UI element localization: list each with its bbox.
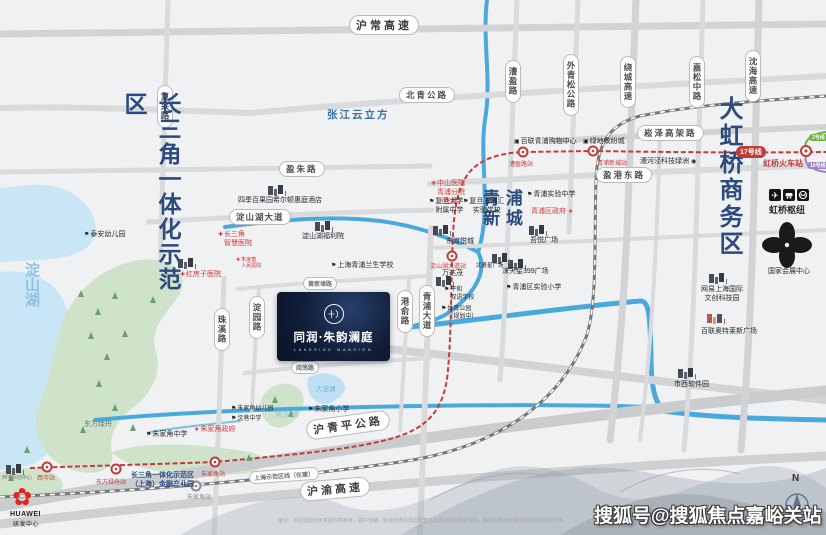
wuyue-building-sketch (529, 226, 534, 235)
station-xicen: 西岑站 (37, 473, 55, 482)
poi-beilingxing-plaza: 北菱星广场 (476, 263, 504, 270)
poi-csj-smart-hospital: ✚长三角 智慧医院 (218, 231, 252, 249)
gov-star-icon: ★ (568, 209, 573, 215)
zone-changsanjiao-demo-area: 长三角一体化示范区 (116, 92, 184, 312)
wangyi-building-sketch (709, 274, 714, 283)
disclaimer-text: 备注：本区位图为示意图仅供参考，图中道路、轨道交通及周边配套信息源自政府相关规划… (278, 517, 568, 524)
road-jiasong-middle: 嘉松中路 (689, 56, 705, 108)
station-dianshanhu-ave: 淀山湖大道站 (430, 261, 466, 270)
road-waiqingsong-hwy: 外青松公路 (563, 54, 579, 116)
hospital-cross-icon: ✚ (218, 232, 223, 238)
maglev-icon (786, 193, 793, 197)
road-zhuxi: 珠溪路 (214, 308, 230, 351)
poi-csj-finance-park: 长三角一体化示范区 （上海）金融产业园 (131, 472, 194, 490)
dongdu-building-sketch (433, 226, 438, 235)
tree-icon (246, 454, 252, 461)
road-shenhai-expwy: 沈海高速 (745, 50, 761, 102)
poi-taian-kindergarten: ⚑泰安幼儿园 (84, 231, 125, 240)
shixi-building-sketch (678, 369, 683, 378)
poi-necc: 国家会展中心 (768, 268, 810, 277)
road-yingzhu: 盈朱路 (279, 161, 325, 177)
poi-bailian-outlets: 百联奥特莱斯广场 (701, 328, 757, 337)
mall-icon: ▣ (583, 139, 589, 145)
tree-icon (272, 396, 278, 403)
hospital-cross-icon: ✚ (180, 272, 185, 278)
blx-building-sketch (492, 254, 497, 263)
zone-hongqiao-cbd: 大虹桥商务区 (712, 96, 747, 271)
map-canvas: ✈ (0, 0, 826, 535)
poi-zhujiajiao-ms: ⚑朱家角中学 (146, 431, 187, 440)
project-name: 同润·朱韵澜庭 (293, 329, 373, 345)
poi-dianshanhu-welfare-house: 淀山湖福利院 (302, 233, 344, 242)
zone-zhangjiang-cloud-cube: 张江云立方 (327, 107, 390, 122)
road-caoying: 漕盈路 (505, 60, 521, 103)
line17-badge: 17号线 (736, 146, 766, 158)
poi-fudan-affiliated-hs: ⚑复旦大学 附属中学 (429, 198, 463, 216)
school-icon: ⚑ (331, 263, 336, 269)
station-caoying: 漕盈路站 (509, 159, 533, 168)
tree-icon (95, 308, 101, 315)
tree-icon (78, 290, 84, 297)
road-qingpu-ave: 青浦大道 (419, 285, 435, 337)
school-icon: ⚑ (308, 407, 313, 413)
road-yuedang: 阅荡路 (291, 361, 319, 374)
wandamao-building-sketch (436, 277, 441, 286)
road-gangyu: 港俞路 (397, 290, 413, 333)
road-huchang-expwy: 沪常高速 (349, 15, 419, 35)
poi-lansheng-school: ⚑上海青浦兰生学校 (331, 262, 393, 271)
tree-icon (96, 380, 102, 387)
road-beiqing-hwy: 北青公路 (399, 87, 455, 103)
poi-hongfangzi-hospital: ✚红房子医院 (180, 271, 221, 280)
xicen-building-sketch (6, 465, 11, 474)
road-yinggang-east: 盈港东路 (596, 167, 652, 183)
poi-netease-tech-park: 网易上海国际 文创科技园 (701, 286, 743, 304)
gov-star-icon: ★ (194, 427, 199, 433)
zone-zhujiajiao: 朱家角 (274, 409, 298, 420)
lake-dadianhu-label: 大淀湖 (316, 383, 336, 393)
school-icon: ⚑ (429, 199, 434, 205)
poi-wupuhui-school: ⚑复旦五浦汇 实验学校 (463, 198, 504, 216)
huawei-logo-icon: ✿ (12, 486, 32, 510)
tree-icon (24, 446, 30, 453)
road-dianshanhu-ave: 淀山湖大道 (229, 209, 291, 225)
road-dianyuan: 淀园路 (249, 296, 265, 339)
school-icon: ⚑ (463, 199, 468, 205)
poi-zhujiajiao-kindergarten: ⚑朱家角幼儿园 (231, 406, 273, 414)
poi-zhujiajiao-ps: ⚑朱家角小学 (308, 406, 349, 415)
poi-sports-park-planned: ⚑体育公园 （规划中） (441, 306, 477, 321)
hospital-cross-icon: ✚ (431, 181, 436, 187)
project-card: 同润·朱韵澜庭 LAKESIDE MANSION (277, 292, 390, 361)
hotel-building-sketch (268, 186, 273, 195)
poi-caohejing-tech-oasis: 漕河泾科技绿洲◉ (640, 158, 697, 167)
poi-bailian-shopping-center: ▣百联青浦购物中心 (514, 138, 577, 147)
poi-zhujiajiao-gov: ★朱家角政府 (194, 426, 235, 435)
zone-dianshanhu-lake: 淀山湖 (22, 262, 43, 332)
poi-wuyue-plaza: 吾悦广场 (530, 237, 558, 246)
station-zhujiajiao: 朱家角站 (201, 469, 225, 478)
poi-greenland-binfen-city: ▣绿地缤纷城 (583, 138, 625, 147)
poi-shenxiang-ms: ⚑沈巷中学 (231, 416, 261, 424)
school-icon: ⚑ (84, 232, 89, 238)
station-hongqiao-railway: 虹桥火车站 (763, 158, 803, 169)
tree-icon (112, 404, 118, 411)
poi-shixi-software-park: 市西软件园 (674, 381, 709, 390)
station-zhujiajiao-demo-line: 朱家角站 (187, 492, 211, 501)
road-raocheng-expwy: 绕城高速 (620, 56, 636, 108)
poi-qingpu-experimental-ps: ⚑青浦区实验小学 (506, 284, 561, 293)
plane-icon: ✈ (771, 191, 779, 201)
station-dongfanglvzhou: 东方绿舟站 (96, 477, 126, 486)
line2-badge: 2号线 (809, 134, 826, 141)
poi-xicen-innovation-center: 西岑科创中心 (2, 475, 32, 481)
poi-pinghe-school: ⚑平和 双语学校 (444, 287, 474, 302)
poi-hilton-hotel: 四季百果园希尔顿惠庭酒店 (238, 197, 322, 206)
huawei-brand: HUAWEI (10, 511, 41, 518)
welfare-building-sketch (315, 222, 320, 231)
poi-dongfang-lvzhou: 东方绿舟 (84, 421, 112, 430)
road-songze-elevated: 崧泽高架路 (637, 125, 704, 141)
poi-qingpu-experimental-ms: ⚑青浦实验中学 (527, 191, 575, 200)
tree-icon (122, 330, 128, 337)
hongqiao-hub-icons: ✈ (769, 189, 809, 201)
poi-laitianxing-399-plaza: 涞天星399广场 (502, 268, 549, 277)
poi-hongqiao-hub: 虹桥枢纽 (769, 205, 805, 216)
mall-icon: ▣ (514, 139, 520, 145)
poi-dongdu-yuecheng: 东渡悦城 (446, 238, 474, 247)
line10-badge: 10号线 (807, 162, 826, 169)
outlets-building-sketch (707, 314, 712, 323)
road-huangjiadai: 黄家埭路 (303, 277, 337, 290)
boat-icon: ⚑ (441, 306, 446, 312)
huawei-rd-label: 研发中心 (13, 519, 39, 528)
school-icon: ⚑ (527, 192, 532, 198)
project-emblem-icon (321, 301, 347, 327)
project-name-en: LAKESIDE MANSION (294, 347, 373, 352)
sohu-watermark: 搜狐号@搜狐焦点嘉峪关站 (594, 501, 822, 528)
school-icon: ⚑ (506, 285, 511, 291)
hospital-cross-icon: ✚ (236, 257, 240, 263)
compass-north-label: N (792, 473, 799, 486)
school-icon: ⚑ (231, 416, 236, 422)
tech-park-icon: ◉ (691, 159, 696, 165)
school-icon: ⚑ (146, 432, 151, 438)
tree-icon (104, 353, 110, 360)
station-qingpu-new-city: 青浦新城站 (597, 158, 627, 167)
poi-qingpu-district-gov: 青浦区政府★ (531, 208, 574, 217)
school-icon: ⚑ (231, 406, 236, 412)
poi-wanda-mall: 万达茂 (442, 270, 463, 279)
school-icon: ⚑ (444, 287, 449, 293)
necc-clover-icon (762, 222, 812, 268)
tree-icon (88, 332, 94, 339)
poi-zhujiajiao-peoples-hospital: ✚朱家角 人民医院 (236, 257, 261, 270)
tree-icon (130, 424, 136, 431)
